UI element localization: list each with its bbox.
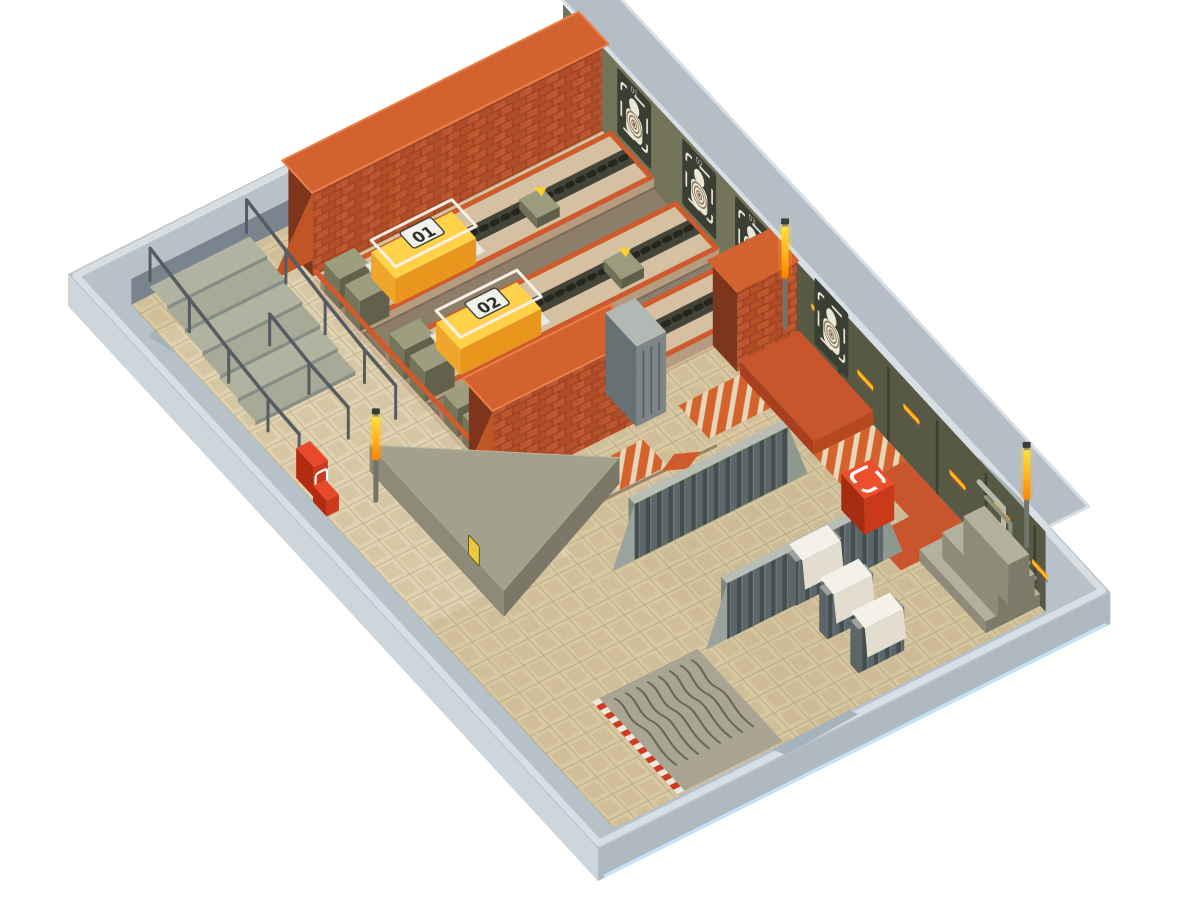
far-wall-rib <box>936 419 939 496</box>
isometric-map-render: 0102030102 <box>0 0 1200 912</box>
lamp-glow-blade <box>372 416 379 460</box>
screenshot-root: 0102030102 <box>0 0 1200 912</box>
paper-target-gate-left-face <box>819 587 827 640</box>
paper-target-gate-left-face <box>788 553 796 606</box>
paper-target-gate-left-face <box>850 621 858 674</box>
lamp-cap <box>1023 442 1031 448</box>
scene-layer: 0102030102 <box>68 0 1110 881</box>
far-wall-rib <box>887 366 890 443</box>
lamp-cap <box>781 218 789 224</box>
lamp-cap <box>372 408 380 414</box>
lamp-glow-blade <box>1023 450 1030 500</box>
lamp-glow-blade <box>782 226 789 278</box>
